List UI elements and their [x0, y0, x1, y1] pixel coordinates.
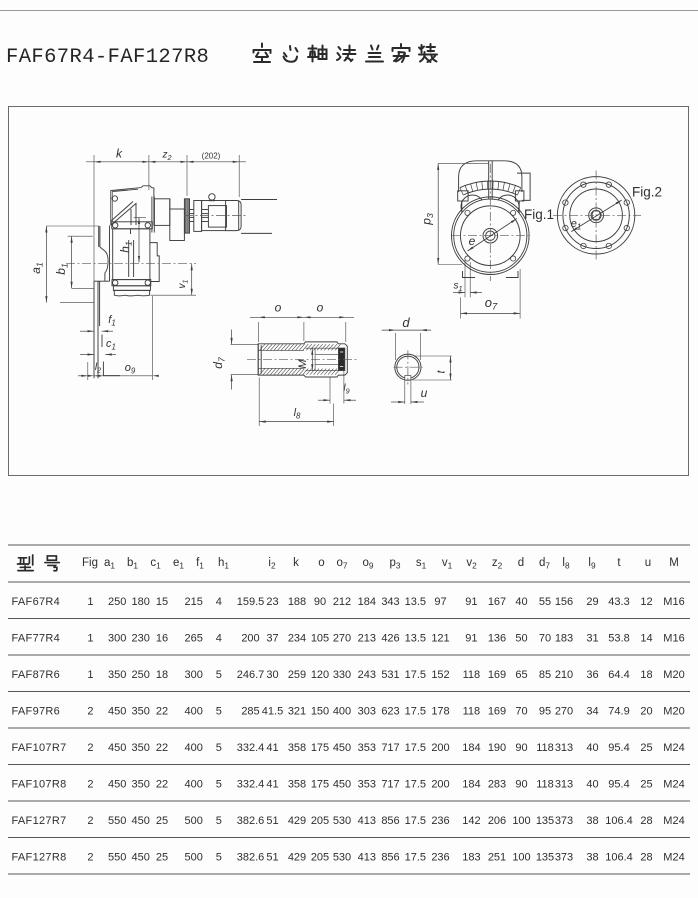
- svg-text:d7: d7: [211, 356, 227, 369]
- svg-text:FAF127R7: FAF127R7: [12, 815, 67, 827]
- svg-text:350: 350: [132, 705, 150, 717]
- svg-text:FAF127R8: FAF127R8: [12, 851, 67, 863]
- svg-text:55: 55: [539, 596, 551, 608]
- svg-text:450: 450: [108, 742, 126, 754]
- svg-text:2: 2: [87, 815, 93, 827]
- svg-text:450: 450: [132, 815, 150, 827]
- svg-text:17.5: 17.5: [405, 851, 426, 863]
- svg-text:(202): (202): [202, 152, 221, 161]
- svg-text:350: 350: [132, 742, 150, 754]
- svg-text:o9: o9: [125, 362, 136, 376]
- svg-text:o: o: [318, 557, 324, 569]
- svg-text:l8: l8: [562, 557, 570, 571]
- svg-text:28: 28: [640, 851, 652, 863]
- svg-text:400: 400: [185, 778, 203, 790]
- svg-text:13.5: 13.5: [405, 596, 426, 608]
- svg-text:303: 303: [358, 705, 376, 717]
- svg-text:156: 156: [555, 596, 573, 608]
- svg-text:d7: d7: [539, 557, 550, 571]
- svg-text:4: 4: [216, 596, 222, 608]
- svg-text:95.4: 95.4: [608, 742, 629, 754]
- svg-text:120: 120: [311, 669, 329, 681]
- svg-text:169: 169: [488, 669, 506, 681]
- svg-text:426: 426: [381, 632, 399, 644]
- svg-text:40: 40: [515, 596, 527, 608]
- svg-text:90: 90: [515, 742, 527, 754]
- svg-text:p3: p3: [420, 213, 436, 226]
- svg-text:41: 41: [266, 742, 278, 754]
- svg-text:330: 330: [333, 669, 351, 681]
- svg-text:M: M: [669, 557, 679, 569]
- svg-text:o: o: [275, 301, 282, 315]
- svg-text:Fig.1: Fig.1: [524, 207, 554, 222]
- svg-text:17.5: 17.5: [405, 705, 426, 717]
- svg-text:200: 200: [431, 778, 449, 790]
- svg-text:4: 4: [216, 632, 222, 644]
- svg-text:30: 30: [266, 669, 278, 681]
- svg-text:64.4: 64.4: [608, 669, 629, 681]
- svg-text:717: 717: [381, 742, 399, 754]
- svg-text:b1: b1: [54, 263, 70, 275]
- svg-text:230: 230: [132, 632, 150, 644]
- svg-text:382.6: 382.6: [237, 851, 265, 863]
- svg-text:15: 15: [156, 596, 168, 608]
- svg-text:s1: s1: [454, 281, 463, 294]
- svg-text:5: 5: [216, 705, 222, 717]
- svg-text:22: 22: [156, 778, 168, 790]
- svg-text:2: 2: [87, 778, 93, 790]
- svg-text:350: 350: [132, 778, 150, 790]
- svg-text:184: 184: [462, 778, 480, 790]
- svg-text:5: 5: [216, 669, 222, 681]
- svg-text:175: 175: [311, 778, 329, 790]
- svg-text:429: 429: [288, 851, 306, 863]
- svg-text:d: d: [518, 557, 524, 569]
- svg-text:e1: e1: [173, 557, 184, 571]
- svg-text:FAF87R6: FAF87R6: [12, 669, 61, 681]
- svg-text:M24: M24: [663, 815, 684, 827]
- svg-text:450: 450: [333, 742, 351, 754]
- svg-text:b1: b1: [127, 557, 138, 571]
- svg-text:c1: c1: [150, 557, 161, 571]
- svg-text:159.5: 159.5: [237, 596, 265, 608]
- svg-text:18: 18: [156, 669, 168, 681]
- svg-text:28: 28: [640, 815, 652, 827]
- svg-text:22: 22: [156, 705, 168, 717]
- svg-text:234: 234: [288, 632, 306, 644]
- svg-text:h1: h1: [118, 241, 134, 253]
- svg-text:106.4: 106.4: [605, 815, 633, 827]
- svg-text:M16: M16: [663, 632, 684, 644]
- svg-text:FAF67R4: FAF67R4: [12, 596, 61, 608]
- svg-text:17.5: 17.5: [405, 815, 426, 827]
- svg-text:FAF107R8: FAF107R8: [12, 778, 67, 790]
- svg-text:5: 5: [216, 851, 222, 863]
- svg-text:167: 167: [488, 596, 506, 608]
- svg-text:FAF77R4: FAF77R4: [12, 632, 61, 644]
- svg-text:717: 717: [381, 778, 399, 790]
- svg-text:358: 358: [288, 778, 306, 790]
- svg-text:o7: o7: [336, 557, 347, 571]
- svg-text:l8: l8: [294, 407, 301, 421]
- svg-text:18: 18: [640, 669, 652, 681]
- svg-text:210: 210: [555, 669, 573, 681]
- svg-text:d: d: [402, 315, 410, 330]
- svg-text:184: 184: [462, 742, 480, 754]
- svg-text:251: 251: [488, 851, 506, 863]
- svg-text:17.5: 17.5: [405, 778, 426, 790]
- svg-text:38: 38: [586, 815, 598, 827]
- svg-text:623: 623: [381, 705, 399, 717]
- svg-text:206: 206: [488, 815, 506, 827]
- svg-text:212: 212: [333, 596, 351, 608]
- svg-text:20: 20: [640, 705, 652, 717]
- svg-text:50: 50: [515, 632, 527, 644]
- svg-text:51: 51: [266, 851, 278, 863]
- svg-text:243: 243: [358, 669, 376, 681]
- svg-text:373: 373: [555, 851, 573, 863]
- svg-text:25: 25: [640, 778, 652, 790]
- svg-text:74.9: 74.9: [608, 705, 629, 717]
- svg-text:p3: p3: [389, 557, 400, 571]
- svg-text:z2: z2: [492, 557, 503, 571]
- svg-text:M20: M20: [663, 669, 684, 681]
- svg-text:400: 400: [185, 742, 203, 754]
- svg-text:188: 188: [288, 596, 306, 608]
- svg-text:29: 29: [586, 596, 598, 608]
- svg-text:236: 236: [431, 815, 449, 827]
- svg-text:90: 90: [314, 596, 326, 608]
- svg-text:856: 856: [381, 851, 399, 863]
- svg-text:5: 5: [216, 815, 222, 827]
- svg-text:200: 200: [431, 742, 449, 754]
- svg-text:FAF107R7: FAF107R7: [12, 742, 67, 754]
- svg-text:k: k: [116, 147, 123, 161]
- svg-text:150: 150: [311, 705, 329, 717]
- svg-text:13.5: 13.5: [405, 632, 426, 644]
- svg-text:183: 183: [462, 851, 480, 863]
- svg-text:353: 353: [358, 742, 376, 754]
- svg-text:f1: f1: [196, 557, 204, 571]
- svg-text:313: 313: [555, 742, 573, 754]
- svg-text:v1: v1: [442, 557, 453, 571]
- svg-text:FAF97R6: FAF97R6: [12, 705, 61, 717]
- svg-text:343: 343: [381, 596, 399, 608]
- svg-text:382.6: 382.6: [237, 815, 265, 827]
- svg-text:183: 183: [555, 632, 573, 644]
- svg-text:a1: a1: [104, 557, 115, 571]
- svg-text:169: 169: [488, 705, 506, 717]
- svg-text:36: 36: [586, 669, 598, 681]
- svg-text:135: 135: [536, 851, 554, 863]
- svg-text:16: 16: [156, 632, 168, 644]
- svg-text:38: 38: [586, 851, 598, 863]
- svg-text:531: 531: [381, 669, 399, 681]
- svg-text:180: 180: [132, 596, 150, 608]
- svg-text:v1: v1: [177, 280, 190, 289]
- svg-text:91: 91: [465, 596, 477, 608]
- svg-text:283: 283: [488, 778, 506, 790]
- svg-text:91: 91: [465, 632, 477, 644]
- svg-text:e: e: [469, 234, 476, 248]
- svg-text:M24: M24: [663, 851, 684, 863]
- svg-text:184: 184: [358, 596, 376, 608]
- svg-text:373: 373: [555, 815, 573, 827]
- svg-text:M20: M20: [663, 705, 684, 717]
- svg-text:118: 118: [463, 669, 481, 681]
- svg-text:95.4: 95.4: [608, 778, 629, 790]
- svg-text:z2: z2: [162, 150, 172, 163]
- svg-text:135: 135: [536, 815, 554, 827]
- svg-text:Fig: Fig: [82, 557, 98, 569]
- svg-text:M24: M24: [663, 742, 684, 754]
- svg-text:12: 12: [640, 596, 652, 608]
- svg-text:l9: l9: [343, 383, 349, 396]
- svg-text:25: 25: [640, 742, 652, 754]
- svg-text:5: 5: [216, 742, 222, 754]
- svg-text:178: 178: [431, 705, 449, 717]
- svg-text:o9: o9: [362, 557, 373, 571]
- svg-text:856: 856: [381, 815, 399, 827]
- svg-text:265: 265: [185, 632, 203, 644]
- svg-text:90: 90: [515, 778, 527, 790]
- svg-text:313: 313: [555, 778, 573, 790]
- svg-text:f1: f1: [108, 314, 115, 328]
- svg-text:500: 500: [185, 851, 203, 863]
- svg-text:142: 142: [462, 815, 480, 827]
- svg-text:51: 51: [266, 815, 278, 827]
- svg-text:190: 190: [488, 742, 506, 754]
- svg-text:25: 25: [156, 851, 168, 863]
- svg-text:43.3: 43.3: [608, 596, 629, 608]
- svg-text:530: 530: [333, 815, 351, 827]
- svg-text:152: 152: [431, 669, 449, 681]
- svg-text:358: 358: [288, 742, 306, 754]
- svg-text:530: 530: [333, 851, 351, 863]
- svg-text:1: 1: [87, 596, 93, 608]
- svg-text:429: 429: [288, 815, 306, 827]
- svg-text:350: 350: [108, 669, 126, 681]
- svg-text:85: 85: [539, 669, 551, 681]
- svg-text:o: o: [317, 301, 324, 315]
- svg-text:5: 5: [216, 778, 222, 790]
- svg-text:321: 321: [288, 705, 306, 717]
- svg-text:h1: h1: [218, 557, 229, 571]
- svg-text:97: 97: [434, 596, 446, 608]
- svg-text:450: 450: [108, 705, 126, 717]
- svg-text:u: u: [645, 557, 651, 569]
- svg-text:FAF67R4-FAF127R8: FAF67R4-FAF127R8: [6, 46, 209, 69]
- svg-text:236: 236: [431, 851, 449, 863]
- svg-text:246.7: 246.7: [237, 669, 265, 681]
- svg-text:450: 450: [333, 778, 351, 790]
- svg-text:400: 400: [185, 705, 203, 717]
- svg-text:M16: M16: [663, 596, 684, 608]
- svg-text:259: 259: [288, 669, 306, 681]
- svg-text:300: 300: [185, 669, 203, 681]
- svg-text:300: 300: [108, 632, 126, 644]
- svg-text:c1: c1: [106, 338, 116, 352]
- svg-text:413: 413: [358, 851, 376, 863]
- svg-text:41.5: 41.5: [262, 705, 283, 717]
- svg-text:215: 215: [185, 596, 203, 608]
- svg-text:2: 2: [87, 851, 93, 863]
- svg-text:250: 250: [108, 596, 126, 608]
- svg-text:70: 70: [515, 705, 527, 717]
- svg-text:332.4: 332.4: [237, 778, 265, 790]
- svg-text:118: 118: [463, 705, 481, 717]
- svg-text:121: 121: [431, 632, 449, 644]
- svg-text:500: 500: [185, 815, 203, 827]
- svg-text:17.5: 17.5: [405, 669, 426, 681]
- svg-text:Fig.2: Fig.2: [632, 185, 662, 200]
- svg-text:e1: e1: [571, 218, 582, 232]
- svg-text:41: 41: [266, 778, 278, 790]
- svg-text:l9: l9: [588, 557, 596, 571]
- svg-text:136: 136: [488, 632, 506, 644]
- svg-text:106.4: 106.4: [605, 851, 633, 863]
- svg-text:205: 205: [311, 815, 329, 827]
- svg-text:65: 65: [515, 669, 527, 681]
- svg-text:M: M: [297, 359, 309, 369]
- svg-text:o7: o7: [485, 295, 498, 312]
- svg-text:2: 2: [87, 705, 93, 717]
- svg-text:450: 450: [132, 851, 150, 863]
- svg-text:213: 213: [358, 632, 376, 644]
- svg-text:34: 34: [586, 705, 598, 717]
- svg-text:175: 175: [311, 742, 329, 754]
- svg-text:1: 1: [87, 669, 93, 681]
- svg-text:200: 200: [241, 632, 259, 644]
- svg-text:u: u: [421, 386, 428, 400]
- svg-text:a1: a1: [29, 262, 45, 274]
- svg-text:332.4: 332.4: [237, 742, 265, 754]
- svg-text:413: 413: [358, 815, 376, 827]
- svg-text:400: 400: [333, 705, 351, 717]
- svg-text:270: 270: [333, 632, 351, 644]
- svg-text:105: 105: [311, 632, 329, 644]
- svg-text:250: 250: [132, 669, 150, 681]
- svg-text:t: t: [617, 557, 621, 569]
- svg-text:550: 550: [108, 815, 126, 827]
- svg-text:31: 31: [586, 632, 598, 644]
- svg-text:205: 205: [311, 851, 329, 863]
- svg-text:450: 450: [108, 778, 126, 790]
- svg-text:100: 100: [512, 851, 530, 863]
- svg-text:95: 95: [539, 705, 551, 717]
- svg-text:2: 2: [87, 742, 93, 754]
- svg-text:270: 270: [555, 705, 573, 717]
- svg-text:70: 70: [539, 632, 551, 644]
- svg-text:t: t: [436, 370, 448, 374]
- svg-text:23: 23: [266, 596, 278, 608]
- svg-text:25: 25: [156, 815, 168, 827]
- svg-text:1: 1: [87, 632, 93, 644]
- svg-text:22: 22: [156, 742, 168, 754]
- svg-text:550: 550: [108, 851, 126, 863]
- svg-text:i2: i2: [268, 557, 276, 571]
- svg-text:37: 37: [266, 632, 278, 644]
- svg-text:k: k: [293, 557, 299, 569]
- svg-text:40: 40: [586, 778, 598, 790]
- svg-text:118: 118: [536, 742, 554, 754]
- svg-text:17.5: 17.5: [405, 742, 426, 754]
- svg-text:53.8: 53.8: [608, 632, 629, 644]
- svg-text:s1: s1: [416, 557, 427, 571]
- svg-text:40: 40: [586, 742, 598, 754]
- svg-text:353: 353: [358, 778, 376, 790]
- svg-text:285: 285: [241, 705, 259, 717]
- svg-text:14: 14: [640, 632, 652, 644]
- svg-text:118: 118: [536, 778, 554, 790]
- svg-text:v2: v2: [466, 557, 477, 571]
- svg-text:100: 100: [512, 815, 530, 827]
- svg-text:M24: M24: [663, 778, 684, 790]
